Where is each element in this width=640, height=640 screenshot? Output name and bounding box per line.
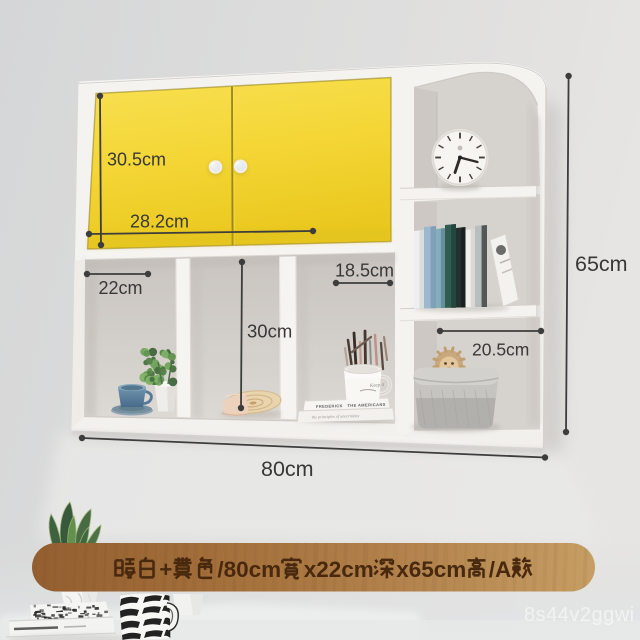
svg-text:65cm: 65cm: [575, 252, 628, 276]
svg-text:20.5cm: 20.5cm: [472, 340, 529, 360]
svg-text:x22cm: x22cm: [304, 557, 374, 582]
svg-text:+: +: [159, 557, 172, 582]
svg-text:8s44v2ggwi: 8s44v2ggwi: [524, 604, 635, 626]
svg-text:28.2cm: 28.2cm: [130, 212, 189, 232]
svg-text:22cm: 22cm: [99, 278, 143, 298]
svg-text:18.5cm: 18.5cm: [335, 261, 394, 281]
svg-text:80cm: 80cm: [261, 457, 314, 481]
svg-text:/A: /A: [489, 557, 512, 582]
svg-text:30.5cm: 30.5cm: [107, 150, 166, 170]
svg-text:30cm: 30cm: [247, 321, 292, 342]
svg-text:x65cm: x65cm: [396, 557, 466, 582]
svg-text:/80cm: /80cm: [217, 557, 281, 582]
